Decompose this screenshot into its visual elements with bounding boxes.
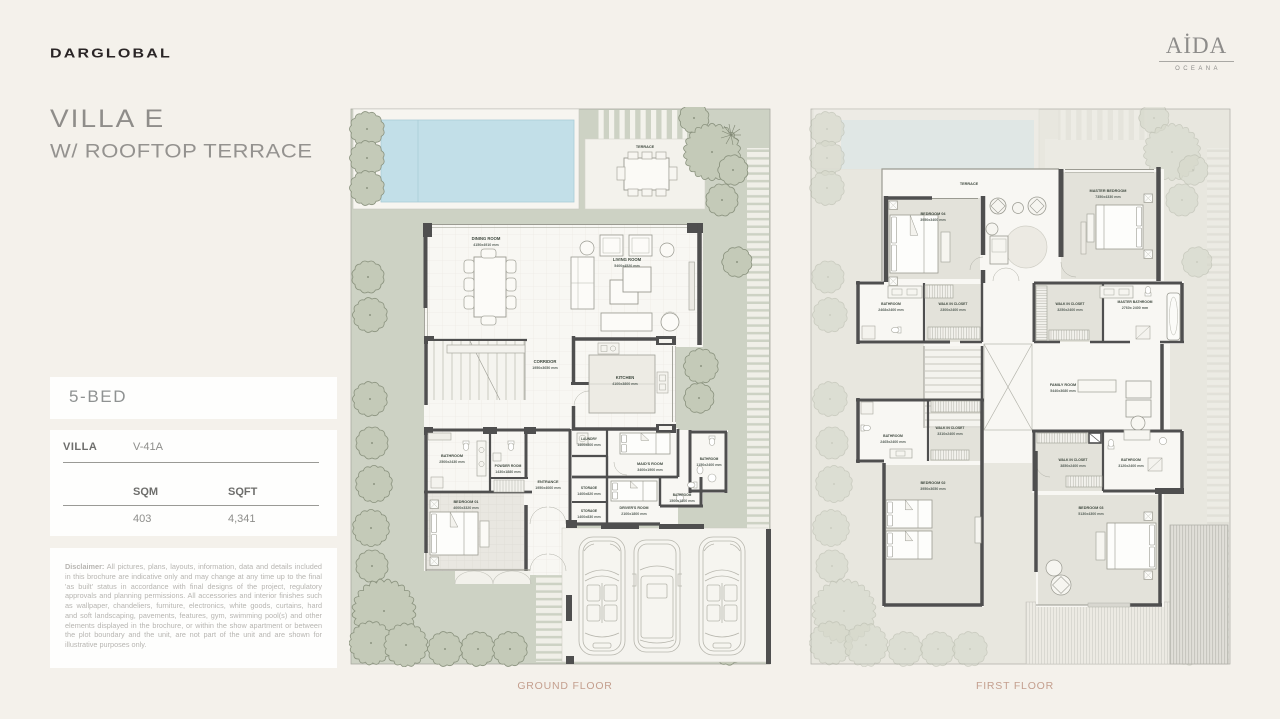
svg-text:1400x830 mm: 1400x830 mm [577, 515, 600, 519]
svg-text:BATHROOM: BATHROOM [1121, 458, 1141, 462]
svg-text:BEDROOM 04: BEDROOM 04 [920, 212, 946, 216]
svg-text:ENTRANCE: ENTRANCE [537, 480, 559, 484]
svg-text:3250x2400 mm: 3250x2400 mm [1057, 308, 1082, 312]
svg-text:TERRACE: TERRACE [960, 182, 979, 186]
svg-text:3120x2400 mm: 3120x2400 mm [1118, 464, 1143, 468]
svg-text:TERRACE: TERRACE [636, 145, 655, 149]
svg-text:BATHROOM: BATHROOM [881, 302, 901, 306]
svg-text:1950x4060 mm: 1950x4060 mm [535, 486, 560, 490]
svg-text:2465x2400 mm: 2465x2400 mm [880, 440, 905, 444]
svg-text:2500x2430 mm: 2500x2430 mm [439, 460, 464, 464]
svg-text:2468x2400 mm: 2468x2400 mm [878, 308, 903, 312]
svg-text:3310x2400 mm: 3310x2400 mm [937, 432, 962, 436]
svg-text:STORAGE: STORAGE [581, 509, 598, 513]
svg-text:BEDROOM 01: BEDROOM 01 [453, 500, 478, 504]
svg-text:5130x4300 mm: 5130x4300 mm [1078, 512, 1103, 516]
svg-text:4100x3800 mm: 4100x3800 mm [612, 382, 637, 386]
svg-text:DRIVER'S ROOM: DRIVER'S ROOM [619, 506, 648, 510]
svg-text:2300x2400 mm: 2300x2400 mm [940, 308, 965, 312]
svg-text:3950x3650 mm: 3950x3650 mm [920, 487, 945, 491]
svg-text:1400x820 mm: 1400x820 mm [577, 492, 600, 496]
svg-text:1500x1800 mm: 1500x1800 mm [669, 499, 694, 503]
svg-text:BEDROOM 03: BEDROOM 03 [1078, 506, 1103, 510]
svg-text:LIVING ROOM: LIVING ROOM [613, 257, 642, 262]
svg-text:WALK IN CLOSET: WALK IN CLOSET [935, 426, 965, 430]
svg-text:3400x1900 mm: 3400x1900 mm [637, 468, 662, 472]
svg-text:BATHROOM: BATHROOM [700, 457, 719, 461]
svg-text:BATHROOM: BATHROOM [673, 493, 692, 497]
svg-text:BATHROOM: BATHROOM [883, 434, 903, 438]
svg-text:5400x4520 mm: 5400x4520 mm [614, 264, 639, 268]
svg-text:3950x3400 mm: 3950x3400 mm [920, 218, 945, 222]
svg-text:DINING ROOM: DINING ROOM [472, 236, 501, 241]
svg-text:1950x3650 mm: 1950x3650 mm [532, 366, 557, 370]
svg-text:BEDROOM 02: BEDROOM 02 [920, 481, 945, 485]
svg-text:3850x2400 mm: 3850x2400 mm [1060, 464, 1085, 468]
svg-text:MASTER BEDROOM: MASTER BEDROOM [1090, 189, 1127, 193]
svg-text:POWDER ROOM: POWDER ROOM [495, 464, 522, 468]
svg-text:STORAGE: STORAGE [581, 486, 598, 490]
svg-text:LAUNDRY: LAUNDRY [581, 437, 598, 441]
svg-text:7350x4330 mm: 7350x4330 mm [1095, 195, 1120, 199]
svg-text:FAMILY ROOM: FAMILY ROOM [1050, 383, 1076, 387]
svg-text:1400x800 mm: 1400x800 mm [577, 443, 600, 447]
svg-text:WALK IN CLOSET: WALK IN CLOSET [1055, 302, 1085, 306]
svg-text:BATHROOM: BATHROOM [441, 454, 463, 458]
svg-text:KITCHEN: KITCHEN [616, 375, 635, 380]
svg-text:4150x4910 mm: 4150x4910 mm [473, 243, 498, 247]
svg-text:WALK IN CLOSET: WALK IN CLOSET [938, 302, 968, 306]
svg-text:CORRIDOR: CORRIDOR [534, 359, 557, 364]
svg-text:WALK IN CLOSET: WALK IN CLOSET [1058, 458, 1088, 462]
svg-text:2760x 2400 mm: 2760x 2400 mm [1122, 306, 1148, 310]
svg-text:2100x1800 mm: 2100x1800 mm [621, 512, 646, 516]
svg-text:5440x3680 mm: 5440x3680 mm [1050, 389, 1075, 393]
svg-text:MASTER BATHROOM: MASTER BATHROOM [1118, 300, 1153, 304]
svg-text:1430x1880 mm: 1430x1880 mm [495, 470, 520, 474]
svg-text:1150x2400 mm: 1150x2400 mm [696, 463, 721, 467]
svg-text:MAID'S ROOM: MAID'S ROOM [637, 462, 663, 466]
svg-text:4000x3320 mm: 4000x3320 mm [453, 506, 478, 510]
